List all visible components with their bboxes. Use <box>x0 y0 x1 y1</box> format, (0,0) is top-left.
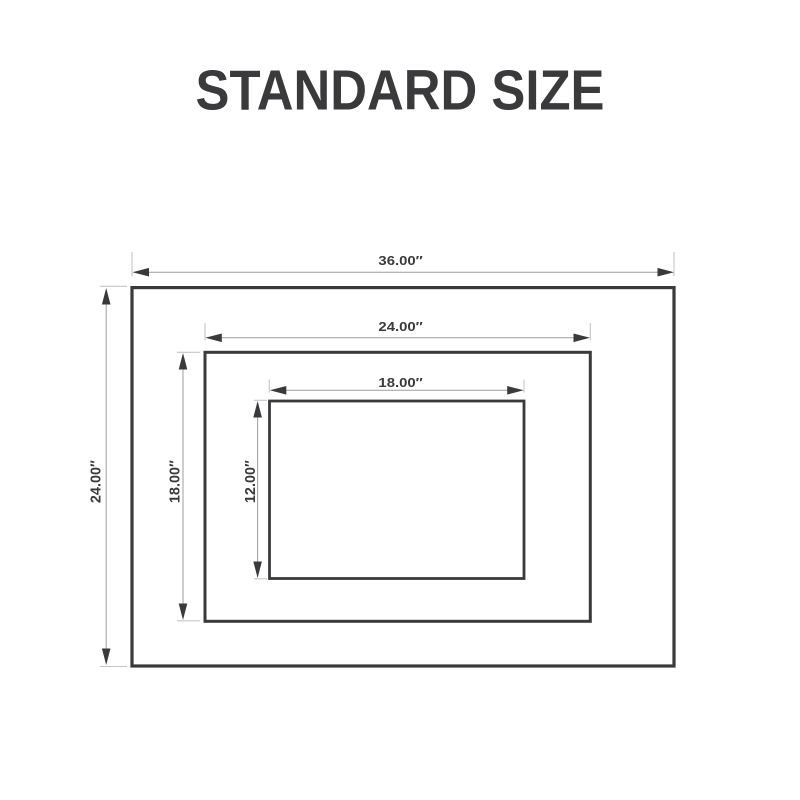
svg-text:12.00″: 12.00″ <box>242 460 259 503</box>
svg-text:24.00″: 24.00″ <box>88 460 105 503</box>
svg-text:18.00″: 18.00″ <box>166 460 183 503</box>
svg-text:24.00″: 24.00″ <box>378 319 422 334</box>
svg-text:STANDARD SIZE: STANDARD SIZE <box>196 59 605 123</box>
svg-text:36.00″: 36.00″ <box>378 253 422 268</box>
svg-text:18.00″: 18.00″ <box>378 375 422 390</box>
